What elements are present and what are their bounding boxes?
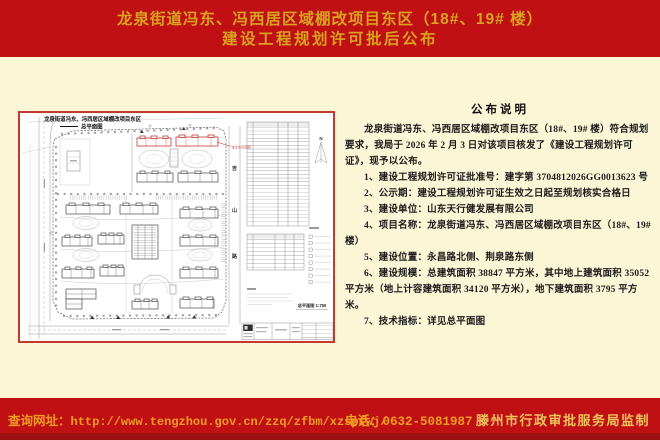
red-note-label: 本次许可范围 bbox=[232, 145, 251, 150]
footer-agency: 滕州市行政审批服务局监制 bbox=[476, 410, 650, 429]
north-label: N bbox=[319, 136, 322, 141]
title-block bbox=[242, 323, 333, 340]
url-value: http://www.tengzhou.gov.cn/zzq/zfbm/xzsp… bbox=[71, 415, 388, 429]
plan-title-block: 龙泉街道冯东、冯西居区域棚改项目东区 总平面图 bbox=[43, 115, 142, 131]
url-label: 查询网址： bbox=[8, 414, 71, 428]
notes-block bbox=[247, 288, 292, 305]
indicator-table bbox=[247, 122, 309, 226]
building-cluster bbox=[137, 171, 218, 182]
scale-label-block: 总平面图 1:750 bbox=[296, 302, 328, 310]
notice-title: 公布说明 bbox=[345, 101, 655, 119]
red-highlight-buildings: 本次许可范围 bbox=[137, 135, 251, 150]
plan-subtitle: 总平面图 bbox=[81, 123, 103, 131]
notice-item-5: 5、建设位置：永昌路北侧、荆泉路东侧 bbox=[345, 250, 655, 266]
road-char-2: 山 bbox=[232, 206, 237, 214]
upper-courtyards bbox=[139, 149, 212, 168]
site-plan-figure: 龙泉街道冯东、冯西居区域棚改项目东区 总平面图 bbox=[18, 111, 335, 343]
notice-item-1: 1、建设工程规划许可证批准号：建字第 3704812026GG0013623 号 bbox=[345, 170, 655, 186]
announcement-page: 龙泉街道冯东、冯西居区域棚改项目东区（18#、19# 楼） 建设工程规划许可批后… bbox=[0, 0, 660, 440]
secondary-table bbox=[247, 234, 304, 270]
footer-band: 查询网址：http://www.tengzhou.gov.cn/zzq/zfbm… bbox=[0, 398, 660, 440]
header-band: 龙泉街道冯东、冯西居区域棚改项目东区（18#、19# 楼） 建设工程规划许可批后… bbox=[0, 0, 660, 57]
notice-intro: 龙泉街道冯东、冯西居区域棚改项目东区（18#、19# 楼）符合规划要求，我局于 … bbox=[345, 122, 655, 170]
notice-section: 公布说明 龙泉街道冯东、冯西居区域棚改项目东区（18#、19# 楼）符合规划要求… bbox=[345, 101, 655, 330]
page-title-line1: 龙泉街道冯东、冯西居区域棚改项目东区（18#、19# 楼） bbox=[0, 10, 660, 30]
road-jishan-label: 吉 山 路 bbox=[232, 164, 238, 260]
building-cluster-large bbox=[66, 289, 96, 309]
footer-url: 查询网址：http://www.tengzhou.gov.cn/zzq/zfbm… bbox=[8, 410, 387, 429]
notice-item-2: 2、公示期：建设工程规划许可证生效之日起至规划核实合格日 bbox=[345, 186, 655, 202]
footer-bottom-strip bbox=[0, 433, 660, 440]
scale-label: 总平面图 1:750 bbox=[298, 302, 327, 309]
legend bbox=[309, 227, 331, 284]
entrance-gate bbox=[134, 275, 176, 294]
road-char-3: 路 bbox=[232, 252, 238, 260]
footer-phone: 电话：0632-5081987 bbox=[345, 410, 473, 429]
notice-item-6: 6、建设规模：总建筑面积 38847 平方米，其中地上建筑面积 35052 平方… bbox=[345, 266, 655, 314]
notice-item-7: 7、技术指标：详见总平面图 bbox=[345, 314, 655, 330]
site-plan-drawing: 龙泉街道冯东、冯西居区域棚改项目东区 总平面图 bbox=[20, 113, 333, 341]
road-char-1: 吉 bbox=[232, 164, 237, 172]
gridded-central-building bbox=[132, 225, 158, 259]
north-arrow-icon: N bbox=[315, 136, 327, 163]
plan-title: 龙泉街道冯东、冯西居区域棚改项目东区 bbox=[43, 115, 142, 123]
page-title-line2: 建设工程规划许可批后公布 bbox=[0, 30, 660, 50]
notice-item-3: 3、建设单位：山东天行健发展有限公司 bbox=[345, 202, 655, 218]
reserved-parcel bbox=[60, 139, 90, 185]
notice-item-4: 4、项目名称：龙泉街道冯东、冯西居区域棚改项目东区（18#、19# 楼） bbox=[345, 218, 655, 250]
